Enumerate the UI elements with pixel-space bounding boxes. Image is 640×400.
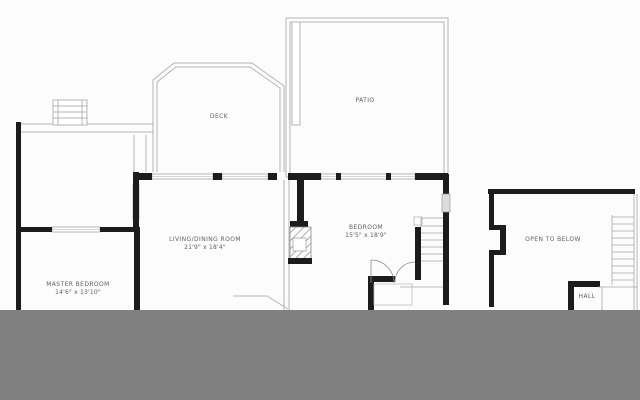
patio-label-text: PATIO [335,97,395,105]
ground-band [0,310,640,400]
entry-steps [53,100,87,125]
side-windows [133,185,449,220]
bedroom-dimensions: 15'5" x 18'9" [306,232,426,240]
hall-label: HALL [567,293,607,301]
deck-label-text: DECK [189,113,249,121]
master-bedroom-label-text: MASTER BEDROOM [18,281,138,289]
living-dining-label: LIVING/DINING ROOM 21'9" x 18'4" [145,236,265,251]
hall-label-text: HALL [567,293,607,301]
bedroom-right-window [442,194,450,212]
open-to-below-label: OPEN TO BELOW [503,236,603,244]
door-arcs [371,260,415,305]
open-to-below-label-text: OPEN TO BELOW [503,236,603,244]
floor-plan: DECK PATIO LIVING/DINING ROOM 21'9" x 18… [0,0,640,400]
patio-label: PATIO [335,97,395,105]
deck-label: DECK [189,113,249,121]
master-bedroom-label: MASTER BEDROOM 14'6" x 13'10" [18,281,138,296]
patio-chimney-strip [292,22,300,125]
fireplace [288,180,312,264]
bedroom-label-text: BEDROOM [306,224,426,232]
floor-plan-linework [0,0,640,400]
upper-left-room-lines [134,135,146,172]
living-dining-label-text: LIVING/DINING ROOM [145,236,265,244]
bedroom-label: BEDROOM 15'5" x 18'9" [306,224,426,239]
master-bedroom-dimensions: 14'6" x 13'10" [18,289,138,297]
living-dining-dimensions: 21'9" x 18'4" [145,244,265,252]
